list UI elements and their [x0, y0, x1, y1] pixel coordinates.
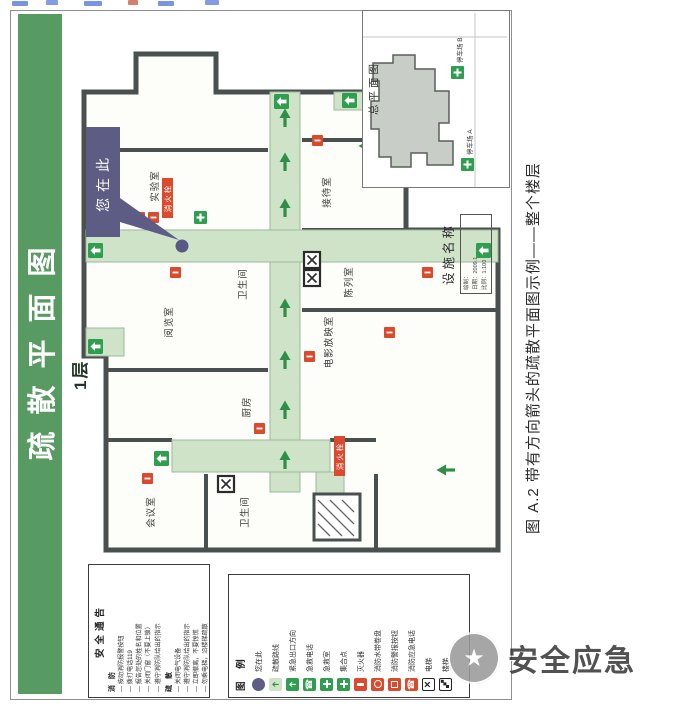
- legend-item-icon: [371, 678, 384, 691]
- notice-line: 疏 散: [164, 570, 174, 692]
- legend-item-label: 灭火器: [356, 651, 366, 672]
- first-aid-icon: [194, 211, 207, 224]
- room-label: 卫生间: [239, 496, 251, 528]
- legend-item-icon: [303, 678, 316, 691]
- legend-item-label: 电梯: [424, 658, 434, 672]
- title-block-line: 日期：2009.1: [472, 218, 481, 290]
- legend-item-label: 消防警报按钮: [390, 630, 400, 672]
- legend-item-icon: [269, 678, 282, 691]
- safety-notice-lines: 消 防 — 按动消防报警按钮 — 拨打电话119 — 报告您处的姓名和位置 — …: [107, 570, 210, 692]
- notice-line: — 立即撤离，不要惊慌: [192, 570, 201, 692]
- page-title: 疏散平面图: [19, 231, 61, 478]
- site-plan-title: 总平面图: [366, 61, 381, 115]
- notice-line: — 关闭电气设备: [174, 570, 183, 692]
- legend-item-icon: [405, 678, 418, 691]
- title-block-line: 绘制：: [463, 218, 472, 290]
- notice-line: — 按动消防报警按钮: [117, 570, 126, 692]
- facility-title-block: 设施名称 绘制： 日期：2009.1 比例：1:100: [438, 210, 492, 298]
- legend-item: 消防应急电话: [403, 581, 420, 691]
- notice-line: — 遵守消防队给出的指示: [154, 570, 163, 692]
- title-block-info: 绘制： 日期：2009.1 比例：1:100: [460, 214, 492, 294]
- evacuation-plan-page: 疏散平面图 1层 安全通告 消 防 — 按动消防报警按钮 — 拨打电话119 —…: [0, 0, 678, 708]
- room-label: 阅览室: [163, 306, 175, 338]
- legend-title: 图 例: [233, 581, 247, 691]
- legend-item: 集合点: [335, 581, 352, 691]
- figure-caption: 图 A.2 带有方向箭头的疏散平面图示例——整个楼层: [522, 108, 543, 588]
- legend-item-icon: [320, 678, 333, 691]
- legend-item-label: 楼梯: [441, 658, 451, 672]
- legend-item-icon: [439, 678, 452, 691]
- legend-item-label: 集合点: [339, 651, 349, 672]
- legend-item: 疏散路线: [267, 581, 284, 691]
- legend-item: 消防警报按钮: [386, 581, 403, 691]
- notice-line: 消 防: [107, 570, 117, 692]
- legend-item: 急救电话: [301, 581, 318, 691]
- legend-item: 消防水带卷盘: [369, 581, 386, 691]
- legend-item: 电梯: [420, 581, 437, 691]
- hydrant-label: 消火栓: [335, 442, 345, 471]
- legend-item: 楼梯: [437, 581, 454, 691]
- legend-item-icon: [388, 678, 401, 691]
- notice-line: — 报告您处的姓名和位置: [135, 570, 144, 692]
- legend-item: 急救室: [318, 581, 335, 691]
- legend-item-icon: [252, 678, 265, 691]
- room-label: 卫生间: [237, 268, 249, 300]
- legend-items: 您在此 疏散路线 紧急出口方向 急救电话: [250, 581, 454, 691]
- stairs: [314, 494, 360, 540]
- assembly-point-icon: [451, 66, 464, 79]
- legend-item: 紧急出口方向: [284, 581, 301, 691]
- legend-item: 您在此: [250, 581, 267, 691]
- facility-name-label: 设施名称: [438, 210, 457, 298]
- legend-box: 图 例 您在此 疏散路线 紧急出口方向: [228, 574, 470, 698]
- you-are-here-dot: [176, 240, 189, 253]
- safety-notice-box: 安全通告 消 防 — 按动消防报警按钮 — 拨打电话119 — 报告您处的姓名和…: [88, 564, 210, 698]
- legend-item-label: 消防水带卷盘: [373, 630, 383, 672]
- notice-line: — 拨打电话119: [126, 570, 135, 692]
- room-label: 厨房: [241, 396, 253, 417]
- assembly-point-icon: [461, 158, 474, 171]
- legend-item-icon: [286, 678, 299, 691]
- legend-item-label: 您在此: [254, 651, 264, 672]
- title-block-line: 比例：1:100: [481, 218, 490, 290]
- legend-item-label: 紧急出口方向: [288, 630, 298, 672]
- legend-item: 灭火器: [352, 581, 369, 691]
- room-label: 陈列室: [343, 266, 355, 298]
- legend-item-label: 消防应急电话: [407, 630, 417, 672]
- room-label: 会议室: [145, 496, 157, 528]
- site-plan-drawing: [363, 13, 507, 187]
- parking-b-label: 停车场 B: [454, 37, 464, 63]
- parking-a-label: 停车场 A: [464, 129, 474, 155]
- legend-item-label: 急救电话: [305, 644, 315, 672]
- room-label: 实验室: [149, 170, 161, 202]
- hydrant-label: 消火栓: [163, 184, 173, 213]
- title-banner: 疏散平面图: [18, 14, 62, 694]
- rotated-drawing-sheet: 疏散平面图 1层 安全通告 消 防 — 按动消防报警按钮 — 拨打电话119 —…: [0, 0, 678, 708]
- safety-notice-title: 安全通告: [92, 570, 106, 692]
- notice-line: — 勿乘电梯，沿楼梯疏散: [201, 570, 210, 692]
- legend-item-label: 疏散路线: [271, 644, 281, 672]
- site-plan-box: 总平面图 停车场 B 停车场 A: [362, 10, 510, 188]
- site-building-footprint: [371, 55, 453, 167]
- legend-item-label: 急救室: [322, 651, 332, 672]
- room-label: 电影放映室: [323, 316, 335, 369]
- room-label: 接待室: [321, 176, 333, 208]
- notice-line: — 遵守消防队给出的指示: [183, 570, 192, 692]
- you-are-here-label: 您在此: [95, 152, 111, 212]
- legend-item-icon: [337, 678, 350, 691]
- legend-item-icon: [422, 678, 435, 691]
- notice-line: — 关闭门窗（不要上锁）: [144, 570, 153, 692]
- legend-item-icon: [354, 678, 367, 691]
